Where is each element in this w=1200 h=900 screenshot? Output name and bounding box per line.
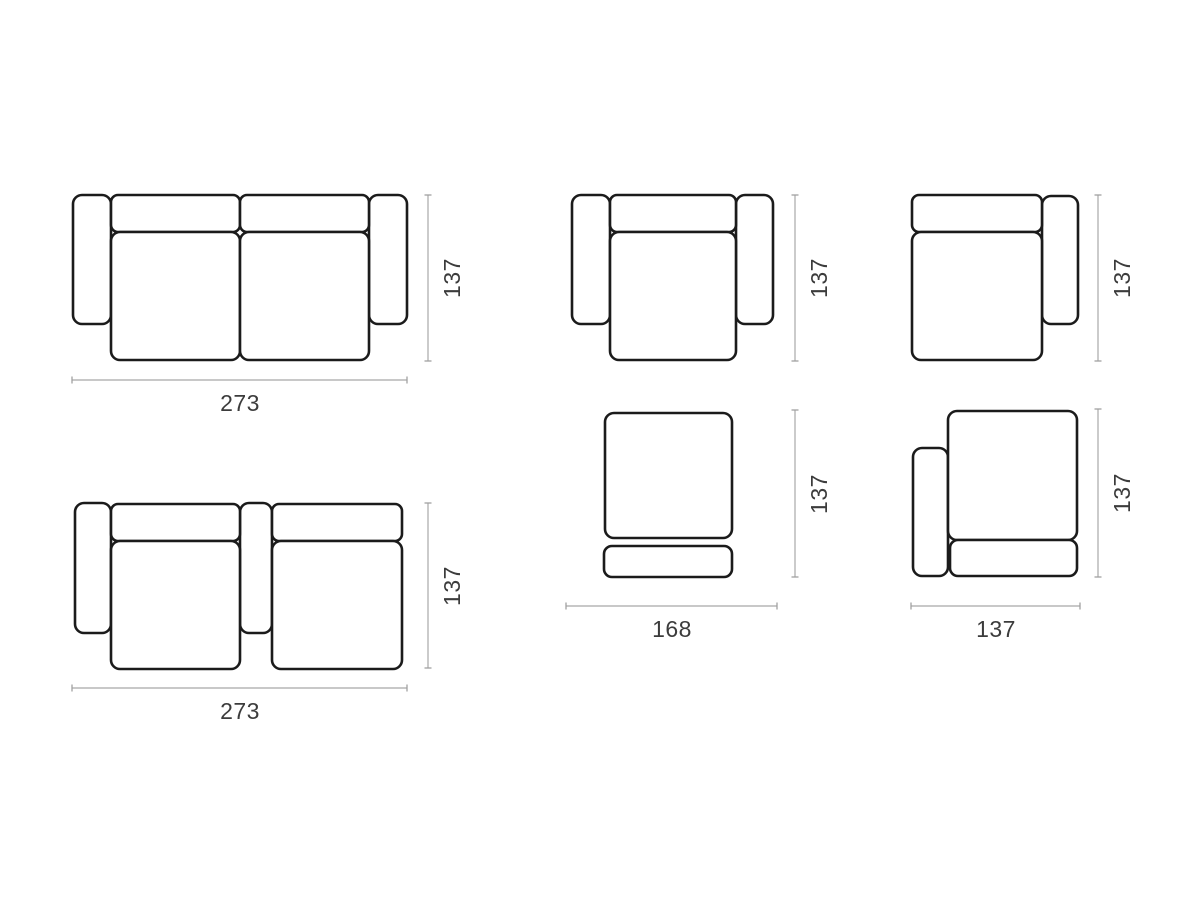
width-dimension-label: 273 xyxy=(220,698,260,724)
diagram-armchair-both-arms: 137 xyxy=(572,195,832,361)
diagram-seat-module-left-arm: 137 137 xyxy=(911,409,1135,642)
sofa-seat-left xyxy=(111,541,240,669)
sofa-middle-arm xyxy=(240,503,272,633)
height-dimension-label: 137 xyxy=(1109,473,1135,513)
height-dimension-label: 137 xyxy=(439,258,465,298)
sofa-seat-right xyxy=(240,232,369,360)
module-right-arm xyxy=(1042,196,1078,324)
sofa-backrest-right xyxy=(240,195,369,232)
width-dimension-label: 137 xyxy=(976,616,1016,642)
diagram-two-seat-modules-left-middle-arm: 137 273 xyxy=(72,503,465,724)
height-dimension-label: 137 xyxy=(439,566,465,606)
module-left-arm xyxy=(913,448,948,576)
sofa-backrest-left xyxy=(111,504,240,541)
armchair-left-arm xyxy=(572,195,610,324)
ottoman-seat xyxy=(605,413,732,538)
diagram-two-seat-sofa-both-arms: 137 273 xyxy=(72,195,465,416)
diagram-ottoman-module: 137 168 xyxy=(566,410,832,642)
width-dimension-label: 168 xyxy=(652,616,692,642)
ottoman-front-cushion xyxy=(604,546,732,577)
armchair-right-arm xyxy=(736,195,773,324)
sofa-backrest-left xyxy=(111,195,240,232)
armchair-backrest xyxy=(610,195,736,232)
height-dimension-label: 137 xyxy=(806,474,832,514)
module-front-cushion xyxy=(950,540,1077,576)
sofa-seat-left xyxy=(111,232,240,360)
armchair-seat xyxy=(610,232,736,360)
sofa-right-arm xyxy=(369,195,407,324)
dimension-drawing-canvas: 137 273 137 137 xyxy=(0,0,1200,900)
module-seat xyxy=(948,411,1077,540)
sofa-seat-right xyxy=(272,541,402,669)
module-backrest xyxy=(912,195,1042,232)
width-dimension-label: 273 xyxy=(220,390,260,416)
furniture-dimension-drawing: 137 273 137 137 xyxy=(0,0,1200,900)
sofa-left-arm xyxy=(73,195,111,324)
module-seat xyxy=(912,232,1042,360)
height-dimension-label: 137 xyxy=(1109,258,1135,298)
diagram-seat-module-right-arm: 137 xyxy=(912,195,1135,361)
height-dimension-label: 137 xyxy=(806,258,832,298)
sofa-left-arm xyxy=(75,503,111,633)
sofa-backrest-right xyxy=(272,504,402,541)
